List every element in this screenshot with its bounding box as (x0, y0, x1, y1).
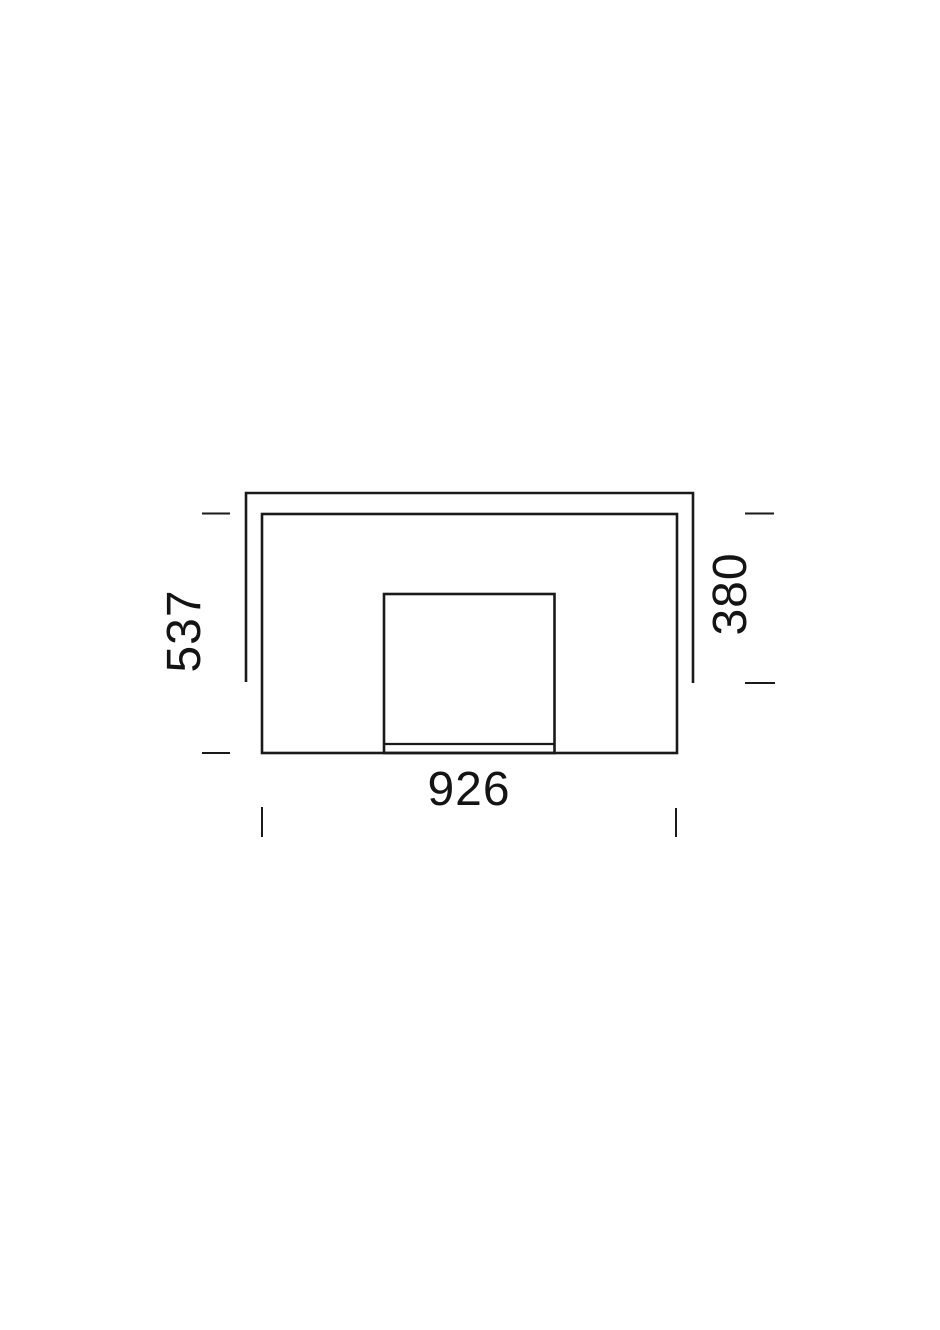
bottom-width-dimension-label: 926 (427, 766, 510, 814)
drawing-page: 537 380 926 (0, 0, 940, 1330)
main-body-rectangle (262, 514, 677, 753)
door-rectangle (384, 594, 555, 753)
dimension-drawing (0, 0, 940, 1330)
right-height-dimension-label: 380 (707, 552, 755, 635)
left-height-dimension-label: 537 (161, 589, 209, 672)
outer-contour-line (246, 493, 693, 683)
